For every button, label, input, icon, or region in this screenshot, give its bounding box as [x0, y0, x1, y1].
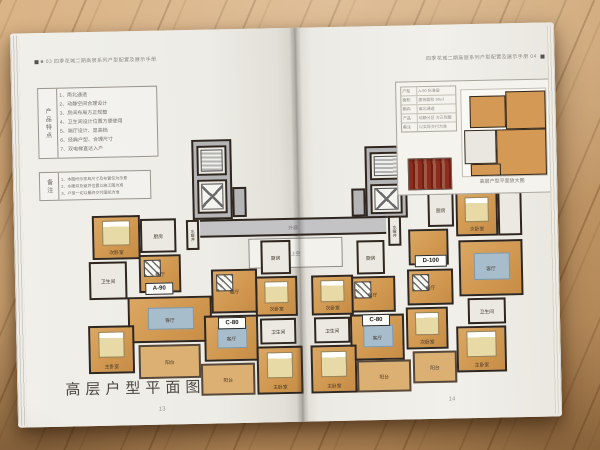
c80r-balcony: 阳台: [357, 359, 412, 392]
room-label: 阳台: [379, 372, 389, 379]
room-label: 餐厅: [368, 291, 378, 298]
bed-symbol: [464, 197, 489, 222]
photo-of-floorplan-booklet-on-wood-desk: ■ 03 四季花城二期高层系列户型配置及展示手册 四季花城二期高层系列户型配置及…: [0, 0, 600, 450]
room-label: 阳台: [430, 363, 440, 370]
c80l-bedroom2: 次卧室: [255, 276, 298, 317]
d100-bathroom: 卫生间: [468, 297, 507, 324]
room-label: A-90: [153, 286, 166, 292]
c80l-balcony: 阳台: [201, 363, 256, 396]
c80r-dining: 餐厅: [349, 276, 396, 313]
d100-master: 主卧室: [456, 325, 507, 372]
stair-symbol: [200, 149, 222, 171]
room-label: 次卧室: [317, 304, 348, 312]
inset-row-value: A-90 标准层: [417, 86, 455, 95]
elevator-left: [197, 179, 228, 214]
elev-symbol: [374, 188, 398, 210]
list-item: 3、户型一切以最终交付图纸为准: [61, 188, 148, 197]
d100-bedroom2a: 次卧室: [455, 192, 498, 237]
a90-bedroom2: 次卧室: [92, 215, 141, 260]
inset-row-label: 产品: [402, 114, 418, 122]
bed-symbol: [102, 220, 131, 245]
a90-living: 客厅: [127, 296, 212, 344]
room-label: 餐厅: [425, 283, 435, 290]
inset-row-value: 以实际交付为准: [418, 122, 456, 131]
unit-spec-table: 户型A-90 标准层面积建筑面积 90㎡朝向南北通透产品动静分区 方正规整备注以…: [400, 85, 457, 132]
c80r-tag: C-80: [362, 314, 390, 327]
inset-caption: 高层户型平面放大图: [454, 176, 550, 185]
inset-row-value: 动静分区 方正规整: [418, 113, 456, 122]
unit-detail-inset-panel: 户型A-90 标准层面积建筑面积 90㎡朝向南北通透产品动静分区 方正规整备注以…: [395, 78, 551, 195]
shaft-left: [232, 187, 247, 217]
notes-table-header: 备注: [40, 173, 60, 200]
room-label: 卫生间: [480, 307, 495, 315]
d100-balcony: 阳台: [413, 350, 458, 383]
page-number-left: 13: [159, 407, 166, 413]
inset-row-label: 户型: [401, 87, 417, 95]
d100-bedroom2b: 次卧室: [406, 307, 449, 350]
bed-symbol: [467, 331, 497, 357]
bed-symbol: [415, 312, 440, 336]
room-label: 客厅: [165, 316, 175, 323]
mini-room: [464, 130, 497, 165]
plan-caption: 高层户型平面图: [65, 376, 205, 400]
c80r-bathroom: 卫生间: [314, 317, 351, 344]
bed-symbol: [320, 350, 347, 377]
inset-row-label: 备注: [402, 123, 418, 131]
features-list: 1、南北通透2、动静空间合理设计3、房间布局方正规整4、卫生间设计位置方便使用5…: [57, 87, 157, 158]
room-label: 卫生间: [101, 277, 116, 285]
c80r-master: 主卧室: [311, 345, 358, 394]
room-label: 水暖井: [190, 229, 196, 241]
c80l-tag: C-80: [218, 317, 246, 330]
room-label: 卫生间: [325, 326, 340, 334]
open-booklet: ■ 03 四季花城二期高层系列户型配置及展示手册 四季花城二期高层系列户型配置及…: [10, 22, 562, 427]
mini-room: [469, 95, 506, 128]
c80l-bathroom: 卫生间: [260, 318, 297, 345]
room-label: 餐厅: [229, 287, 239, 294]
d100-living: 客厅: [458, 239, 523, 296]
room-label: C-80: [369, 317, 382, 323]
room-label: 主卧室: [95, 362, 129, 370]
c80l-dining: 餐厅: [211, 269, 258, 314]
room-label: 厨房: [153, 232, 163, 239]
room-label: 水暖井: [392, 225, 398, 237]
pipe-shaft-right: 水暖井: [388, 216, 402, 246]
room-label: 客厅: [486, 264, 496, 271]
enlarged-unit-mini-plan: [460, 88, 548, 178]
room-label: D-100: [423, 258, 439, 264]
c80l-kitchen: 厨房: [260, 240, 291, 275]
inset-table-row: 备注以实际交付为准: [402, 122, 456, 131]
building-elevation-thumbnail: [408, 158, 453, 191]
room-label: 餐厅: [155, 270, 165, 277]
inset-row-value: 建筑面积 90㎡: [417, 95, 455, 104]
d100-kitchen: 厨房: [427, 192, 454, 227]
a90-bathroom: 卫生间: [89, 261, 128, 300]
header-square-mark-icon: [34, 60, 38, 64]
room-label: 主卧室: [264, 383, 298, 391]
elev-symbol: [201, 183, 224, 209]
mini-room: [496, 129, 547, 176]
list-item: 7、双电梯直达入户: [60, 144, 155, 155]
room-label: 客厅: [226, 334, 236, 341]
a90-tag: A-90: [145, 282, 173, 295]
header-square-mark-icon: [540, 54, 544, 58]
a90-balcony: 阳台: [138, 344, 201, 379]
pipe-shaft-left: 水暖井: [186, 220, 200, 250]
room-label: 阳台: [165, 358, 175, 365]
c80r-bedroom2: 次卧室: [311, 275, 354, 316]
bed-symbol: [264, 281, 289, 304]
product-features-table: 产品特点 1、南北通透2、动静空间合理设计3、房间布局方正规整4、卫生间设计位置…: [37, 86, 158, 159]
notes-table: 备注 1、本图所示家具尺寸及布置仅为示意2、水暖井及管井位置以施工图为准3、户型…: [39, 170, 152, 201]
d100-tag: D-100: [415, 255, 447, 268]
inset-row-value: 南北通透: [418, 104, 456, 113]
d100-utility: [497, 191, 522, 235]
c80r-kitchen: 厨房: [356, 240, 385, 275]
bed-symbol: [320, 280, 345, 303]
page-number-right: 14: [449, 396, 456, 402]
room-label: 阳台: [223, 376, 233, 383]
shaft-right: [351, 188, 366, 216]
stair-symbol: [374, 156, 398, 176]
a90-master: 主卧室: [88, 325, 135, 374]
room-label: 次卧室: [412, 338, 443, 346]
notes-list: 1、本图所示家具尺寸及布置仅为示意2、水暖井及管井位置以施工图为准3、户型一切以…: [59, 171, 151, 200]
room-label: 次卧室: [261, 305, 292, 313]
room-label: 厨房: [366, 254, 376, 261]
room-label: 次卧室: [462, 225, 493, 233]
room-label: 次卧室: [99, 248, 134, 256]
room-label: 客厅: [372, 333, 382, 340]
mini-room: [505, 91, 546, 130]
room-label: 厨房: [436, 206, 446, 213]
inset-row-label: 朝向: [402, 105, 418, 113]
room-label: C-80: [225, 320, 238, 326]
bed-symbol: [98, 331, 125, 358]
stair-left: [196, 145, 227, 176]
inset-row-label: 面积: [401, 96, 417, 104]
features-table-header: 产品特点: [38, 89, 58, 158]
bed-symbol: [266, 351, 293, 378]
a90-kitchen: 厨房: [140, 218, 177, 253]
room-label: 主卧室: [463, 360, 500, 368]
room-label: 厨房: [271, 254, 281, 261]
room-label: 主卧室: [318, 382, 352, 390]
room-label: 卫生间: [271, 327, 286, 335]
d100-dining: 餐厅: [407, 269, 454, 306]
mini-room: [471, 163, 501, 176]
